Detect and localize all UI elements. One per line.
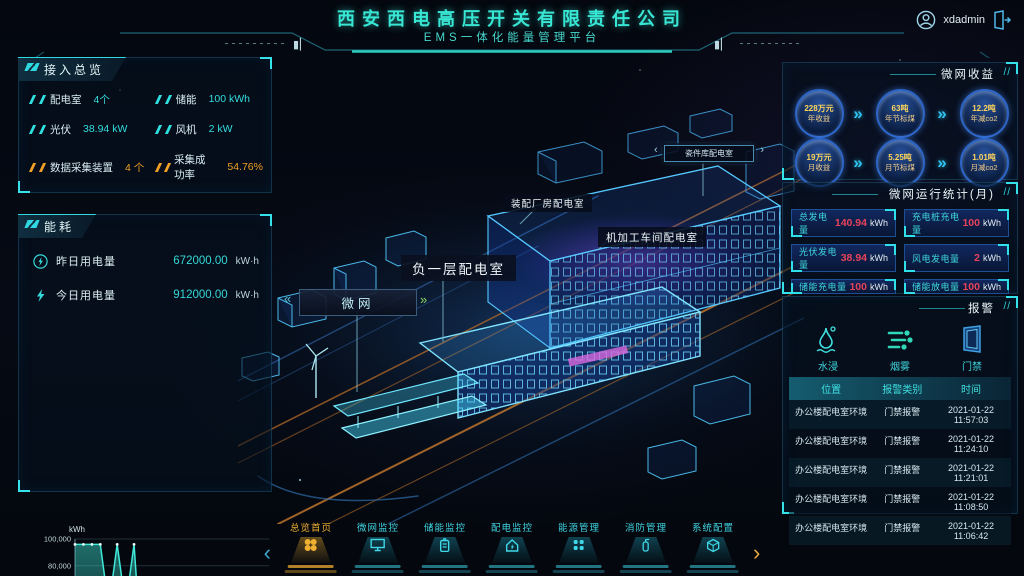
overview-clover-icon: [303, 538, 319, 552]
badge-year-co2: 12.2吨年减co2: [960, 89, 1009, 138]
smoke-icon: [885, 325, 915, 355]
header-bars-left: ▮▏: [293, 38, 310, 51]
stat-success-rate: 采集成功率54.76%: [157, 152, 263, 182]
overview-grid: 配电室4个 储能100 kWh 光伏38.94 kW 风机2 kW 数据采集装置…: [31, 88, 263, 186]
panel-title: 能耗: [18, 214, 96, 238]
panel-alarm: 报警 水浸 烟雾: [782, 296, 1018, 514]
panel-title: 报警: [968, 300, 995, 316]
nav-item-fire-mgmt[interactable]: 消防管理: [619, 520, 673, 573]
nav-item-energy-mgmt[interactable]: 能源管理: [552, 520, 606, 573]
stat-storage-charge: 储能充电量100kWh: [791, 279, 896, 294]
slash-icon: [29, 95, 46, 104]
header-dashes-right: [740, 43, 800, 44]
stat-total-gen: 总发电量140.94kWh: [791, 209, 896, 237]
door-access-icon: [959, 325, 985, 355]
svg-text:100,000: 100,000: [44, 535, 71, 544]
stat-collectors: 数据采集装置4 个: [31, 160, 157, 175]
alarm-row[interactable]: 办公楼配电室环境门禁报警2021-01-22 11:08:50: [789, 487, 1011, 516]
label-assembly-substation[interactable]: 装配厂房配电室: [504, 194, 592, 212]
slash-icon: [154, 163, 170, 172]
panel-energy: 能耗 昨日用电量 672000.00 kW·h 今日用电量 912000.00 …: [18, 214, 272, 492]
nav-item-system-config[interactable]: 系统配置: [686, 520, 740, 573]
stat-storage: 储能100 kWh: [157, 92, 263, 107]
label-warehouse-substation[interactable]: 瓷件库配电室: [664, 145, 754, 162]
stat-pv: 光伏38.94 kW: [31, 122, 157, 137]
fire-extinguisher-icon: [640, 538, 652, 552]
alarm-type-smoke[interactable]: 烟雾: [885, 325, 915, 373]
bottom-nav: ‹ 总览首页 微网监控 储能监控 配电监控: [264, 520, 761, 573]
monitor-icon: [370, 538, 386, 552]
alarm-row[interactable]: 办公楼配电室环境门禁报警2021-01-22 11:06:42: [789, 516, 1011, 545]
panel-title: 微网运行统计(月): [889, 186, 995, 202]
nav-item-microgrid-monitor[interactable]: 微网监控: [351, 520, 405, 573]
slash-icon: [29, 125, 46, 134]
energy-pinwheel-icon: [572, 538, 586, 552]
label-microgrid[interactable]: 微网: [299, 289, 417, 316]
stats-grid: 总发电量140.94kWh 充电桩充电量100kWh 光伏发电量38.94kWh…: [791, 209, 1009, 285]
panel-title: 微网收益: [941, 66, 995, 82]
ems-dashboard: 西安西电高压开关有限责任公司 EMS一体化能量管理平台 ▮▏ ▮▏ xdadmi…: [0, 0, 1024, 576]
badge-month-co2: 1.01吨月减co2: [960, 138, 1009, 187]
header-dashes-left: [225, 43, 285, 44]
nav-prev-icon[interactable]: ‹: [264, 533, 271, 573]
logout-door-icon[interactable]: [992, 10, 1012, 30]
alarm-row[interactable]: 办公楼配电室环境门禁报警2021-01-22 11:24:10: [789, 429, 1011, 458]
nav-item-power-monitor[interactable]: 配电监控: [485, 520, 539, 573]
energy-row-today: 今日用电量 912000.00 kW·h: [33, 287, 259, 303]
slash-icon: [29, 163, 46, 172]
battery-icon: [438, 538, 452, 552]
stat-wind: 风机2 kW: [157, 122, 263, 137]
stat-storage-discharge: 储能放电量100kWh: [904, 279, 1009, 294]
badge-year-revenue: 228万元年收益: [795, 89, 844, 138]
revenue-badges: 228万元年收益 » 63吨年节标煤 » 12.2吨年减co2 19万元月收益 …: [791, 89, 1013, 175]
microgrid-arrow-left-icon: «: [284, 291, 291, 306]
header-bars-right: ▮▏: [714, 38, 731, 51]
chevron-right-icon: »: [853, 153, 862, 173]
panel-title: 接入总览: [18, 57, 126, 81]
stat-substations: 配电室4个: [31, 92, 157, 107]
microgrid-arrow-right-icon: »: [420, 292, 427, 307]
energy-chart: 020,00040,00060,00080,000100,00002468101…: [37, 523, 277, 576]
alarm-type-door[interactable]: 门禁: [959, 325, 985, 373]
bolt-circle-icon: [33, 254, 48, 269]
badge-month-revenue: 19万元月收益: [795, 138, 844, 187]
label-basement-substation[interactable]: 负一层配电室: [401, 255, 516, 281]
alarm-row[interactable]: 办公楼配电室环境门禁报警2021-01-22 11:57:03: [789, 400, 1011, 429]
user-box: xdadmin: [916, 10, 1012, 30]
nav-item-storage-monitor[interactable]: 储能监控: [418, 520, 472, 573]
nav-item-home[interactable]: 总览首页: [284, 520, 338, 573]
company-title: 西安西电高压开关有限责任公司: [0, 5, 1024, 31]
alarm-type-water[interactable]: 水浸: [815, 325, 841, 373]
label-machining-substation[interactable]: 机加工车间配电室: [598, 227, 706, 247]
alarm-row[interactable]: 办公楼配电室环境门禁报警2021-01-22 11:21:01: [789, 458, 1011, 487]
stat-pv-gen: 光伏发电量38.94kWh: [791, 244, 896, 272]
stat-charger: 充电桩充电量100kWh: [904, 209, 1009, 237]
chevron-right-icon: »: [853, 104, 862, 124]
alarm-table-header: 位置报警类别时间: [789, 377, 1011, 400]
chevron-right-icon: »: [937, 153, 946, 173]
stat-wind-gen: 风电发电量2kWh: [904, 244, 1009, 272]
platform-title: EMS一体化能量管理平台: [0, 29, 1024, 45]
nav-next-icon[interactable]: ›: [753, 533, 760, 573]
badge-year-coal: 63吨年节标煤: [876, 89, 925, 138]
panel-microgrid-revenue: 微网收益 228万元年收益 » 63吨年节标煤 » 12.2吨年减co2 19万…: [782, 62, 1018, 180]
energy-row-yesterday: 昨日用电量 672000.00 kW·h: [33, 253, 259, 269]
alarm-type-row: 水浸 烟雾 门禁: [793, 321, 1007, 373]
house-icon: [505, 538, 520, 552]
slash-icon: [154, 125, 171, 134]
badge-month-coal: 5.25吨月节标煤: [876, 138, 925, 187]
slash-icon: [154, 95, 171, 104]
chevron-right-icon: »: [937, 104, 946, 124]
svg-text:80,000: 80,000: [48, 561, 71, 570]
bolt-icon: [33, 288, 48, 303]
panel-microgrid-stats: 微网运行统计(月) 总发电量140.94kWh 充电桩充电量100kWh 光伏发…: [782, 182, 1018, 294]
username: xdadmin: [943, 14, 985, 26]
cube-icon: [706, 538, 721, 553]
svg-text:kWh: kWh: [69, 525, 85, 534]
panel-access-overview: 接入总览 配电室4个 储能100 kWh 光伏38.94 kW 风机2 kW 数…: [18, 57, 272, 193]
alarm-table: 位置报警类别时间 办公楼配电室环境门禁报警2021-01-22 11:57:03…: [789, 377, 1011, 509]
water-drop-icon: [815, 325, 841, 355]
user-avatar-icon[interactable]: [916, 10, 936, 30]
